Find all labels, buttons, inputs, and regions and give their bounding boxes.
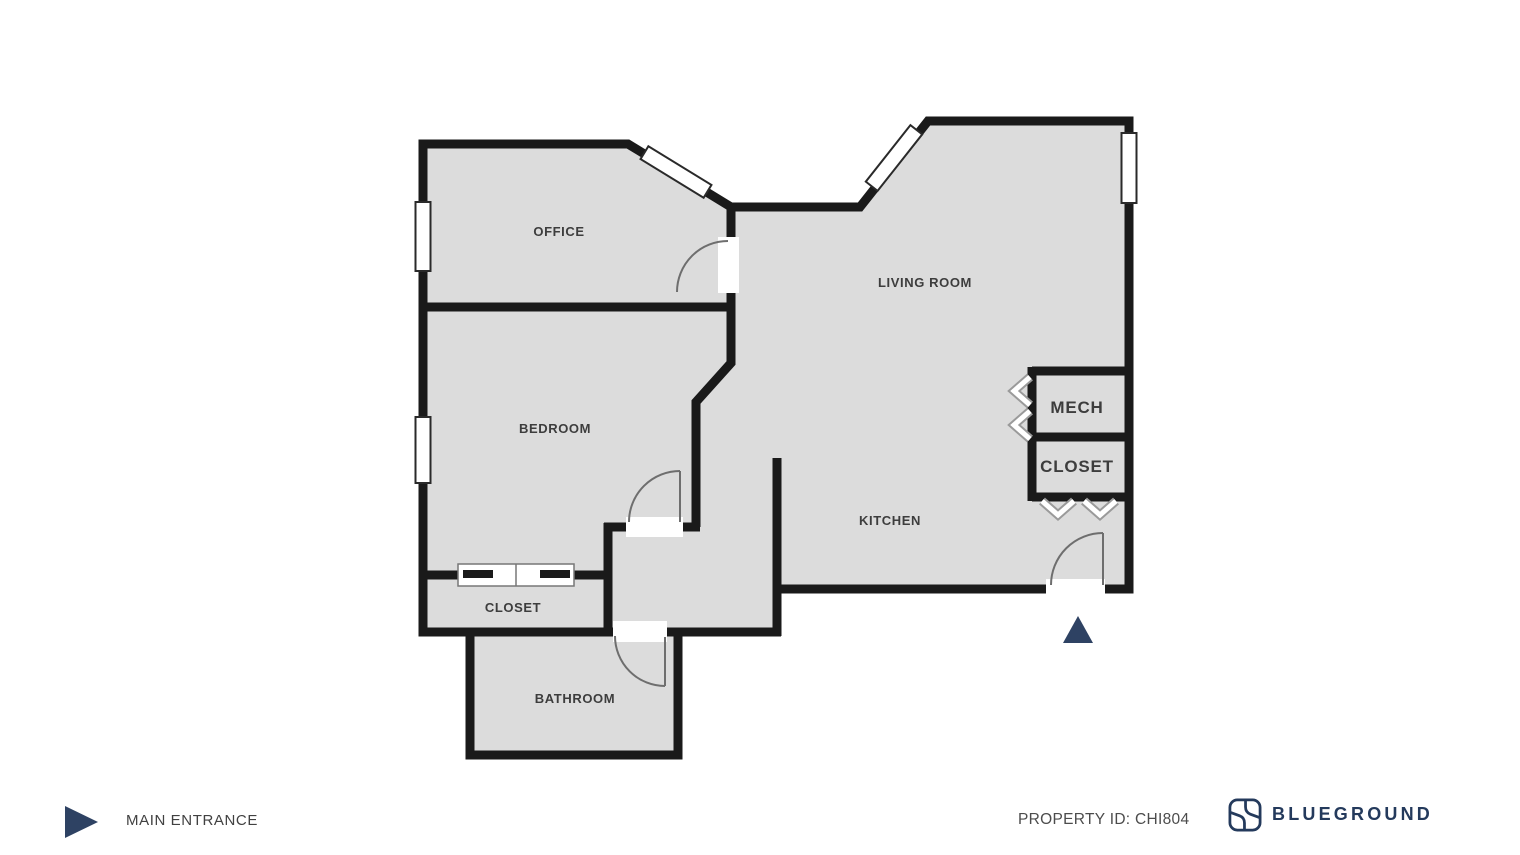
room-label-office: OFFICE	[533, 224, 584, 239]
office-window	[416, 202, 431, 271]
room-label-closet-hall: CLOSET	[1040, 457, 1114, 476]
office-door-threshold	[718, 237, 739, 293]
floor-plan-page: { "floor_plan": { "rooms": [ {"id": "off…	[0, 0, 1520, 855]
blueground-logo-icon	[1228, 798, 1262, 832]
brand-wordmark: BLUEGROUND	[1272, 804, 1433, 825]
sliding-door	[458, 564, 574, 586]
entry-door-threshold	[1046, 579, 1105, 599]
room-label-closet-bedroom: CLOSET	[485, 600, 541, 615]
bedroom-door-threshold	[626, 517, 683, 537]
bedroom-window	[416, 417, 431, 483]
sliding-door-panel-left	[463, 570, 493, 578]
room-label-mech: MECH	[1050, 398, 1103, 417]
floor-plan-drawing: OFFICE LIVING ROOM BEDROOM KITCHEN MECH …	[0, 0, 1520, 855]
main-entrance-triangle-icon	[64, 805, 100, 839]
property-id-label: PROPERTY ID: CHI804	[1018, 811, 1189, 829]
entrance-direction-icon	[1063, 616, 1093, 643]
main-entrance-label: MAIN ENTRANCE	[126, 812, 258, 829]
room-label-bathroom: BATHROOM	[535, 691, 615, 706]
living-right-window	[1122, 133, 1137, 203]
room-label-kitchen: KITCHEN	[859, 513, 921, 528]
room-label-living-room: LIVING ROOM	[878, 275, 972, 290]
sliding-door-panel-right	[540, 570, 570, 578]
bathroom-door-threshold	[613, 621, 667, 642]
room-label-bedroom: BEDROOM	[519, 421, 591, 436]
